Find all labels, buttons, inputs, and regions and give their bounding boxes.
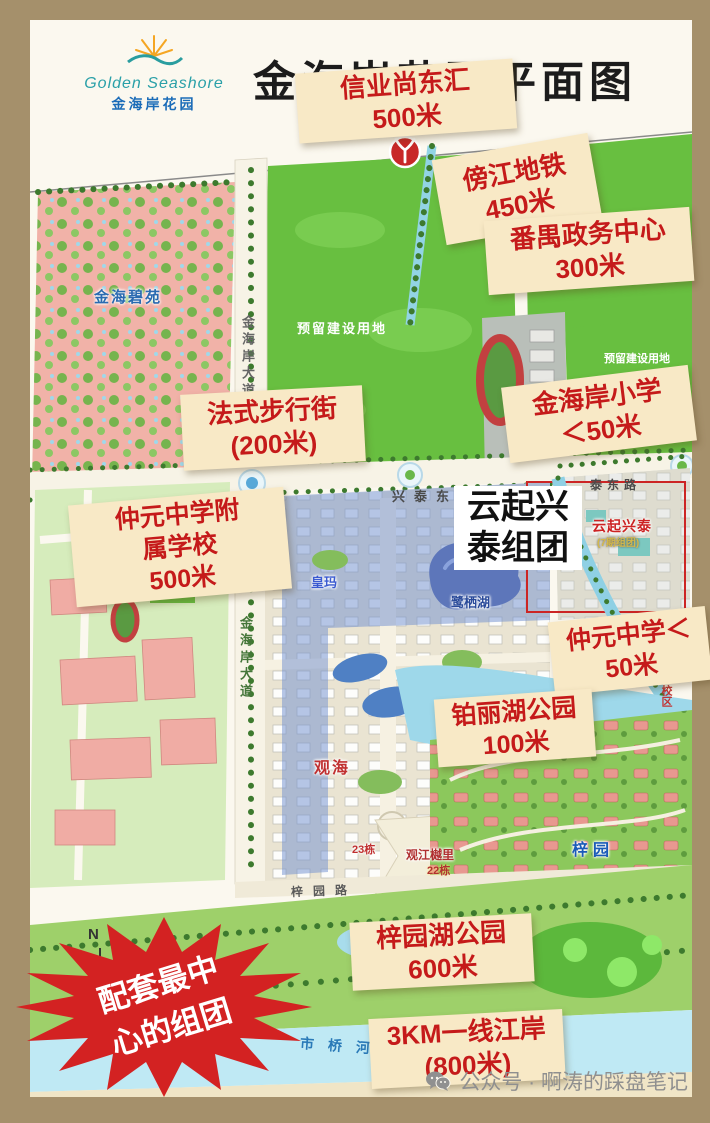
label-reserved-land-right: 预留建设用地 bbox=[604, 350, 670, 366]
golden-seashore-logo: Golden Seashore 金海岸花园 bbox=[64, 30, 244, 118]
road-label-taidong: 泰东路 bbox=[590, 476, 641, 493]
label-guanhai: 观海 bbox=[314, 754, 350, 778]
callout-line: 云起兴 bbox=[454, 487, 582, 528]
label-guanjiang-yueli: 观江樾里 bbox=[406, 846, 454, 863]
watermark-text: 公众号 · 啊涛的踩盘笔记 bbox=[459, 1066, 688, 1096]
wechat-icon bbox=[425, 1070, 451, 1092]
annotation-panyu-gov-center: 番禺政务中心 300米 bbox=[484, 207, 695, 295]
annotation-ziyuanhu-park: 梓园湖公园 600米 bbox=[349, 913, 534, 990]
label-ziyuan-villas: 梓园 bbox=[572, 836, 614, 860]
label-huangma: 皇玛 bbox=[311, 572, 337, 591]
watermark: 公众号 · 啊涛的踩盘笔记 bbox=[425, 1066, 688, 1096]
road-label-jinhaian-avenue-bottom: 金海岸大道 bbox=[236, 616, 255, 701]
label-yunqi-xingtai: 云起兴泰 bbox=[592, 516, 652, 536]
label-luqi-lake: 鹭栖湖 bbox=[451, 592, 490, 611]
annotation-french-walking-street: 法式步行街 (200米) bbox=[180, 385, 366, 470]
sun-wave-logo-icon bbox=[122, 30, 186, 70]
logo-english-text: Golden Seashore bbox=[64, 75, 244, 93]
logo-chinese-text: 金海岸花园 bbox=[64, 94, 244, 114]
metro-station-icon bbox=[390, 137, 420, 167]
site-plan-page: Golden Seashore 金海岸花园 金海岸花园平面图 预留建设用地 发展… bbox=[0, 0, 710, 1123]
road-label-ziyuan: 梓园路 bbox=[291, 881, 358, 900]
label-building-23: 23栋 bbox=[352, 841, 375, 857]
annotation-zhongyuan-affiliated-school: 仲元中学附 属学校 500米 bbox=[68, 487, 292, 607]
starburst-badge: 配套最中 心的组团 bbox=[14, 912, 316, 1102]
label-building-22: 22栋 bbox=[427, 862, 450, 878]
label-jinhai-biyuan: 金海碧苑 bbox=[94, 286, 162, 307]
label-reserved-land: 预留建设用地 bbox=[297, 318, 387, 337]
road-label-jinhaian-avenue-top: 金海岸大道 bbox=[238, 315, 257, 400]
label-yunqi-xingtai-sub: (7期组团) bbox=[597, 534, 639, 549]
callout-line: 泰组团 bbox=[454, 528, 582, 569]
annotation-bolihu-park: 铂丽湖公园 100米 bbox=[434, 689, 596, 768]
cluster-callout-yunqi-xingtai: 云起兴 泰组团 bbox=[454, 486, 582, 570]
